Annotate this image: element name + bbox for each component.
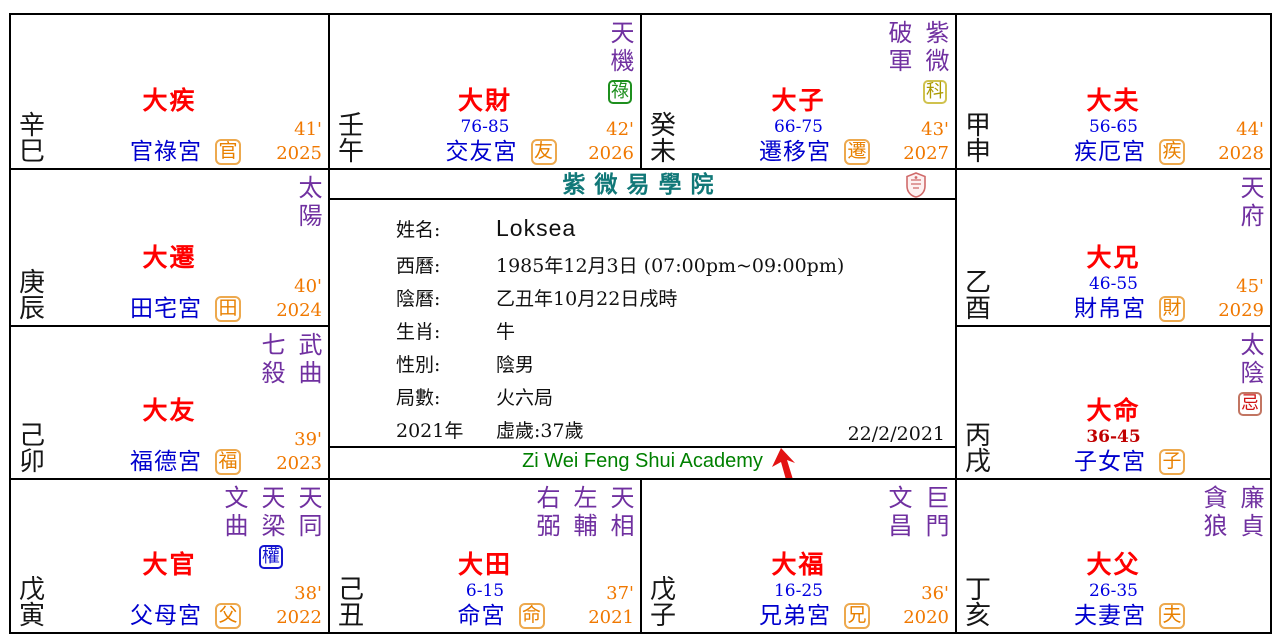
decade-palace-label: 大財 (330, 81, 640, 117)
star-list: 貪狼 廉貞 (1201, 485, 1262, 541)
palace-cell[interactable]: 辛巳 大疾 官祿宮 官 41' 2025 (9, 13, 330, 170)
star-column: 太陽 (296, 175, 320, 231)
age-range-label: 66-75 (642, 117, 955, 137)
star-name: 破軍 (886, 20, 910, 76)
year-label: 2024 (276, 300, 322, 321)
age-range-label: 36-45 (957, 427, 1270, 447)
palace-cell[interactable]: 文曲 天梁 權 天同 戊寅 大官 父母宮 父 38' 2022 (9, 478, 330, 634)
star-name: 左輔 (571, 485, 595, 541)
star-name: 天相 (608, 485, 632, 541)
palace-cell[interactable]: 天機 祿 壬午 大財 76-85 交友宮 友 42' 2026 (328, 13, 642, 170)
age-range-label: 6-15 (330, 581, 640, 601)
star-list: 天府 (1238, 175, 1262, 231)
palace-cell[interactable]: 甲申 大夫 56-65 疾厄宮 疾 44' 2028 (955, 13, 1272, 170)
palace-name: 交友宮 (446, 140, 518, 165)
minute-mark: 40' (294, 276, 322, 297)
palace-cell[interactable]: 右弼 左輔 天相 己丑 大田 6-15 命宮 命 37' 2021 (328, 478, 642, 634)
flow-year-tag: 命 (519, 603, 545, 629)
profile-row: 西曆: 1985年12月3日 (07:00pm~09:00pm) (330, 248, 955, 281)
year-label: 2023 (276, 453, 322, 474)
flow-year-tag: 子 (1159, 449, 1185, 475)
flow-year-tag: 疾 (1159, 139, 1185, 165)
star-column: 天府 (1238, 175, 1262, 231)
star-list: 太陽 (296, 175, 320, 231)
star-name: 紫微 (923, 20, 947, 76)
profile-label: 西曆: (396, 251, 496, 278)
star-name: 廉貞 (1238, 485, 1262, 541)
star-column: 文昌 (886, 485, 910, 541)
profile-value: 牛 (496, 317, 515, 344)
profile-row: 陰曆: 乙丑年10月22日戌時 (330, 281, 955, 314)
star-name: 巨門 (923, 485, 947, 541)
star-name: 天梁 (259, 485, 283, 541)
star-column: 右弼 (534, 485, 558, 541)
minute-mark: 41' (294, 119, 322, 140)
palace-name: 子女宮 (1074, 450, 1146, 475)
star-column: 左輔 (571, 485, 595, 541)
info-panel: 紫微易學院 姓名: Loksea 西曆: 1985年12月3日 (07:00pm… (328, 168, 957, 480)
star-column: 七殺 (259, 332, 283, 388)
profile-label: 姓名: (396, 215, 496, 242)
palace-name: 命宮 (458, 604, 506, 629)
flow-year-tag: 父 (215, 603, 241, 629)
profile-row: 生肖: 牛 (330, 314, 955, 347)
star-column: 文曲 (222, 485, 246, 541)
palace-name: 父母宮 (130, 604, 202, 629)
academy-seal-icon (905, 172, 927, 198)
year-label: 2027 (903, 143, 949, 164)
flow-year-tag: 夫 (1159, 603, 1185, 629)
palace-name: 夫妻宮 (1074, 604, 1146, 629)
year-label: 2025 (276, 143, 322, 164)
star-name: 右弼 (534, 485, 558, 541)
decade-palace-label: 大父 (957, 545, 1270, 581)
palace-name: 福德宮 (130, 450, 202, 475)
academy-title-cn: 紫微易學院 (563, 171, 723, 198)
star-name: 天機 (608, 20, 632, 76)
age-range-label: 16-25 (642, 581, 955, 601)
age-range-label: 26-35 (957, 581, 1270, 601)
age-range-label: 46-55 (957, 274, 1270, 294)
palace-cell[interactable]: 天府 乙酉 大兄 46-55 財帛宮 財 45' 2029 (955, 168, 1272, 327)
palace-cell[interactable]: 七殺 武曲 己卯 大友 福德宮 福 39' 2023 (9, 325, 330, 480)
decade-palace-label: 大子 (642, 81, 955, 117)
star-list: 文昌 巨門 (886, 485, 947, 541)
star-column: 破軍 (886, 20, 910, 76)
palace-cell[interactable]: 貪狼 廉貞 丁亥 大父 26-35 夫妻宮 夫 (955, 478, 1272, 634)
profile-section: 姓名: Loksea 西曆: 1985年12月3日 (07:00pm~09:00… (330, 200, 955, 446)
decade-palace-label: 大遷 (11, 238, 328, 274)
star-name: 七殺 (259, 332, 283, 388)
chart-date: 22/2/2021 (848, 423, 945, 445)
profile-value: 1985年12月3日 (07:00pm~09:00pm) (496, 251, 844, 278)
academy-title-en: Zi Wei Feng Shui Academy (330, 446, 955, 474)
decade-palace-label: 大田 (330, 545, 640, 581)
profile-rows: 姓名: Loksea 西曆: 1985年12月3日 (07:00pm~09:00… (330, 208, 955, 446)
year-label: 2026 (588, 143, 634, 164)
star-column: 貪狼 (1201, 485, 1225, 541)
profile-value: 乙丑年10月22日戌時 (496, 284, 677, 311)
profile-row: 性別: 陰男 (330, 347, 955, 380)
profile-label: 生肖: (396, 317, 496, 344)
star-name: 天同 (296, 485, 320, 541)
decade-palace-label: 大疾 (11, 81, 328, 117)
decade-palace-label: 大福 (642, 545, 955, 581)
star-list: 右弼 左輔 天相 (534, 485, 632, 541)
flow-year-tag: 友 (531, 139, 557, 165)
star-name: 文昌 (886, 485, 910, 541)
palace-name: 官祿宮 (130, 140, 202, 165)
minute-mark: 38' (294, 583, 322, 604)
star-column: 廉貞 (1238, 485, 1262, 541)
star-name: 太陰 (1238, 332, 1262, 388)
profile-value: 陰男 (496, 350, 534, 377)
year-label: 2022 (276, 607, 322, 628)
star-name: 太陽 (296, 175, 320, 231)
flow-year-tag: 田 (215, 296, 241, 322)
palace-name: 田宅宮 (130, 297, 202, 322)
palace-name: 疾厄宮 (1074, 140, 1146, 165)
palace-name: 遷移宮 (759, 140, 831, 165)
star-column: 天同 (296, 485, 320, 541)
decade-palace-label: 大官 (11, 545, 328, 581)
minute-mark: 39' (294, 429, 322, 450)
flow-year-tag: 財 (1159, 296, 1185, 322)
palace-name: 財帛宮 (1074, 297, 1146, 322)
star-name: 文曲 (222, 485, 246, 541)
star-name: 貪狼 (1201, 485, 1225, 541)
flow-year-tag: 官 (215, 139, 241, 165)
decade-palace-label: 大夫 (957, 81, 1270, 117)
year-label: 2020 (903, 607, 949, 628)
profile-label: 2021年 (396, 416, 496, 443)
palace-cell[interactable]: 破軍 紫微 科 癸未 大子 66-75 遷移宮 遷 43' 2027 (640, 13, 957, 170)
star-name: 武曲 (296, 332, 320, 388)
profile-label: 局數: (396, 383, 496, 410)
decade-palace-label: 大命 (957, 391, 1270, 427)
flow-year-tag: 福 (215, 449, 241, 475)
year-label: 2028 (1218, 143, 1264, 164)
palace-name: 兄弟宮 (759, 604, 831, 629)
star-column: 武曲 (296, 332, 320, 388)
flow-year-tag: 兄 (844, 603, 870, 629)
decade-palace-label: 大友 (11, 391, 328, 427)
flow-year-tag: 遷 (844, 139, 870, 165)
year-label: 2029 (1218, 300, 1264, 321)
profile-label: 陰曆: (396, 284, 496, 311)
minute-mark: 42' (606, 119, 634, 140)
star-column: 巨門 (923, 485, 947, 541)
profile-row: 局數: 火六局 (330, 380, 955, 413)
minute-mark: 36' (921, 583, 949, 604)
profile-value: 火六局 (496, 383, 553, 410)
profile-value: Loksea (496, 215, 576, 242)
palace-cell[interactable]: 文昌 巨門 戊子 大福 16-25 兄弟宮 兄 36' 2020 (640, 478, 957, 634)
profile-row: 姓名: Loksea (330, 208, 955, 248)
minute-mark: 44' (1236, 119, 1264, 140)
minute-mark: 45' (1236, 276, 1264, 297)
decade-palace-label: 大兄 (957, 238, 1270, 274)
minute-mark: 43' (921, 119, 949, 140)
star-list: 七殺 武曲 (259, 332, 320, 388)
star-column: 天相 (608, 485, 632, 541)
profile-label: 性別: (396, 350, 496, 377)
age-range-label: 76-85 (330, 117, 640, 137)
profile-value: 虛歲:37歲 (496, 416, 584, 443)
age-range-label: 56-65 (957, 117, 1270, 137)
palace-cell[interactable]: 太陽 庚辰 大遷 田宅宮 田 40' 2024 (9, 168, 330, 327)
star-name: 天府 (1238, 175, 1262, 231)
ziwei-chart: 紫微易學院 姓名: Loksea 西曆: 1985年12月3日 (07:00pm… (0, 0, 1280, 641)
palace-cell[interactable]: 太陰 忌 丙戌 大命 36-45 子女宮 子 (955, 325, 1272, 480)
minute-mark: 37' (606, 583, 634, 604)
year-label: 2021 (588, 607, 634, 628)
panel-title-bar: 紫微易學院 (330, 170, 955, 200)
